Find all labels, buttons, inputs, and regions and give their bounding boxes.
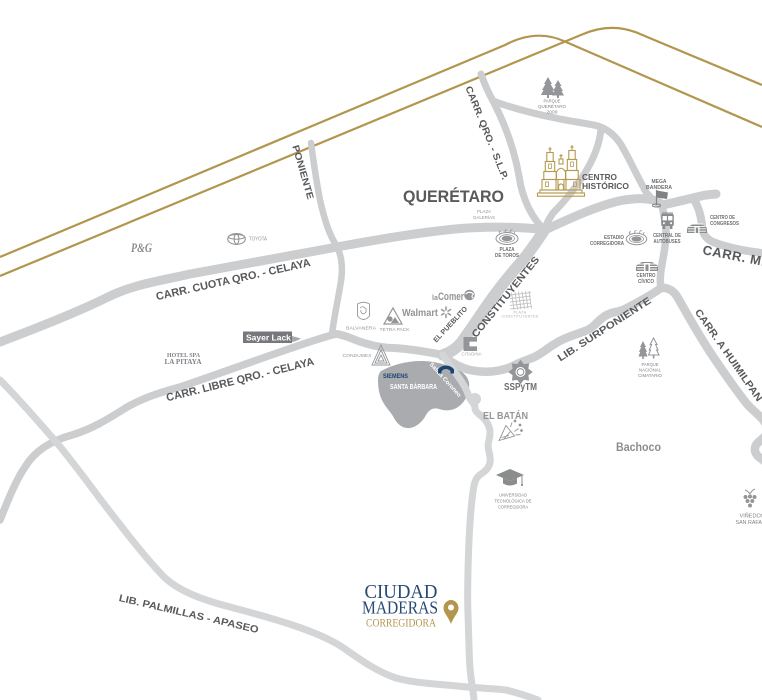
svg-text:CITADINA: CITADINA xyxy=(462,352,482,357)
svg-text:CONGRESOS: CONGRESOS xyxy=(710,221,740,227)
svg-text:Bachoco: Bachoco xyxy=(616,442,661,454)
svg-text:BANDERA: BANDERA xyxy=(646,185,672,191)
svg-text:SSPyTM: SSPyTM xyxy=(504,382,537,393)
svg-text:DE TOROS: DE TOROS xyxy=(495,253,520,259)
svg-text:CORREGIDORA: CORREGIDORA xyxy=(498,505,529,511)
svg-text:SANTA BÁRBARA: SANTA BÁRBARA xyxy=(390,382,437,391)
svg-text:CORREGIDORA: CORREGIDORA xyxy=(366,616,436,630)
svg-text:TETRA PACK: TETRA PACK xyxy=(380,327,411,332)
svg-text:UNIVERSIDAD: UNIVERSIDAD xyxy=(499,493,527,499)
svg-text:GALERÍAS: GALERÍAS xyxy=(473,214,495,221)
svg-text:Comer: Comer xyxy=(438,291,465,303)
svg-text:CONDUMEX: CONDUMEX xyxy=(343,353,373,359)
svg-text:VIÑEDOS: VIÑEDOS xyxy=(740,513,762,520)
svg-text:NACIONAL: NACIONAL xyxy=(639,368,661,374)
svg-text:PLAZA: PLAZA xyxy=(477,209,492,215)
svg-text:CIMATARIO: CIMATARIO xyxy=(638,373,662,379)
svg-text:Sayer Lack: Sayer Lack xyxy=(246,333,291,343)
svg-text:LA PITAYA: LA PITAYA xyxy=(165,357,202,366)
svg-text:SIEMENS: SIEMENS xyxy=(383,373,409,380)
svg-text:AUTOBUSES: AUTOBUSES xyxy=(654,239,682,245)
svg-text:PARQUE: PARQUE xyxy=(642,362,659,368)
svg-text:PARQUE: PARQUE xyxy=(544,99,561,105)
svg-text:TECNOLÓGICA DE: TECNOLÓGICA DE xyxy=(495,498,532,505)
svg-text:TOYOTA: TOYOTA xyxy=(249,237,268,243)
svg-text:QUERÉTARO: QUERÉTARO xyxy=(538,103,566,110)
svg-text:CÍVICO: CÍVICO xyxy=(638,277,654,285)
svg-text:CONSTITUYENTES: CONSTITUYENTES xyxy=(502,315,539,319)
svg-text:EL BATÁN: EL BATÁN xyxy=(483,409,528,422)
svg-text:2000: 2000 xyxy=(547,110,558,116)
svg-text:P&G: P&G xyxy=(131,241,152,255)
svg-text:SAN RAFAEL: SAN RAFAEL xyxy=(736,520,762,526)
svg-text:CORREGIDORA: CORREGIDORA xyxy=(590,241,624,247)
svg-text:HISTÓRICO: HISTÓRICO xyxy=(582,180,629,191)
svg-text:MADERAS: MADERAS xyxy=(362,598,438,618)
svg-text:BALVANERA: BALVANERA xyxy=(346,326,377,331)
svg-text:Walmart: Walmart xyxy=(402,308,439,319)
svg-text:QUERÉTARO: QUERÉTARO xyxy=(403,187,504,206)
